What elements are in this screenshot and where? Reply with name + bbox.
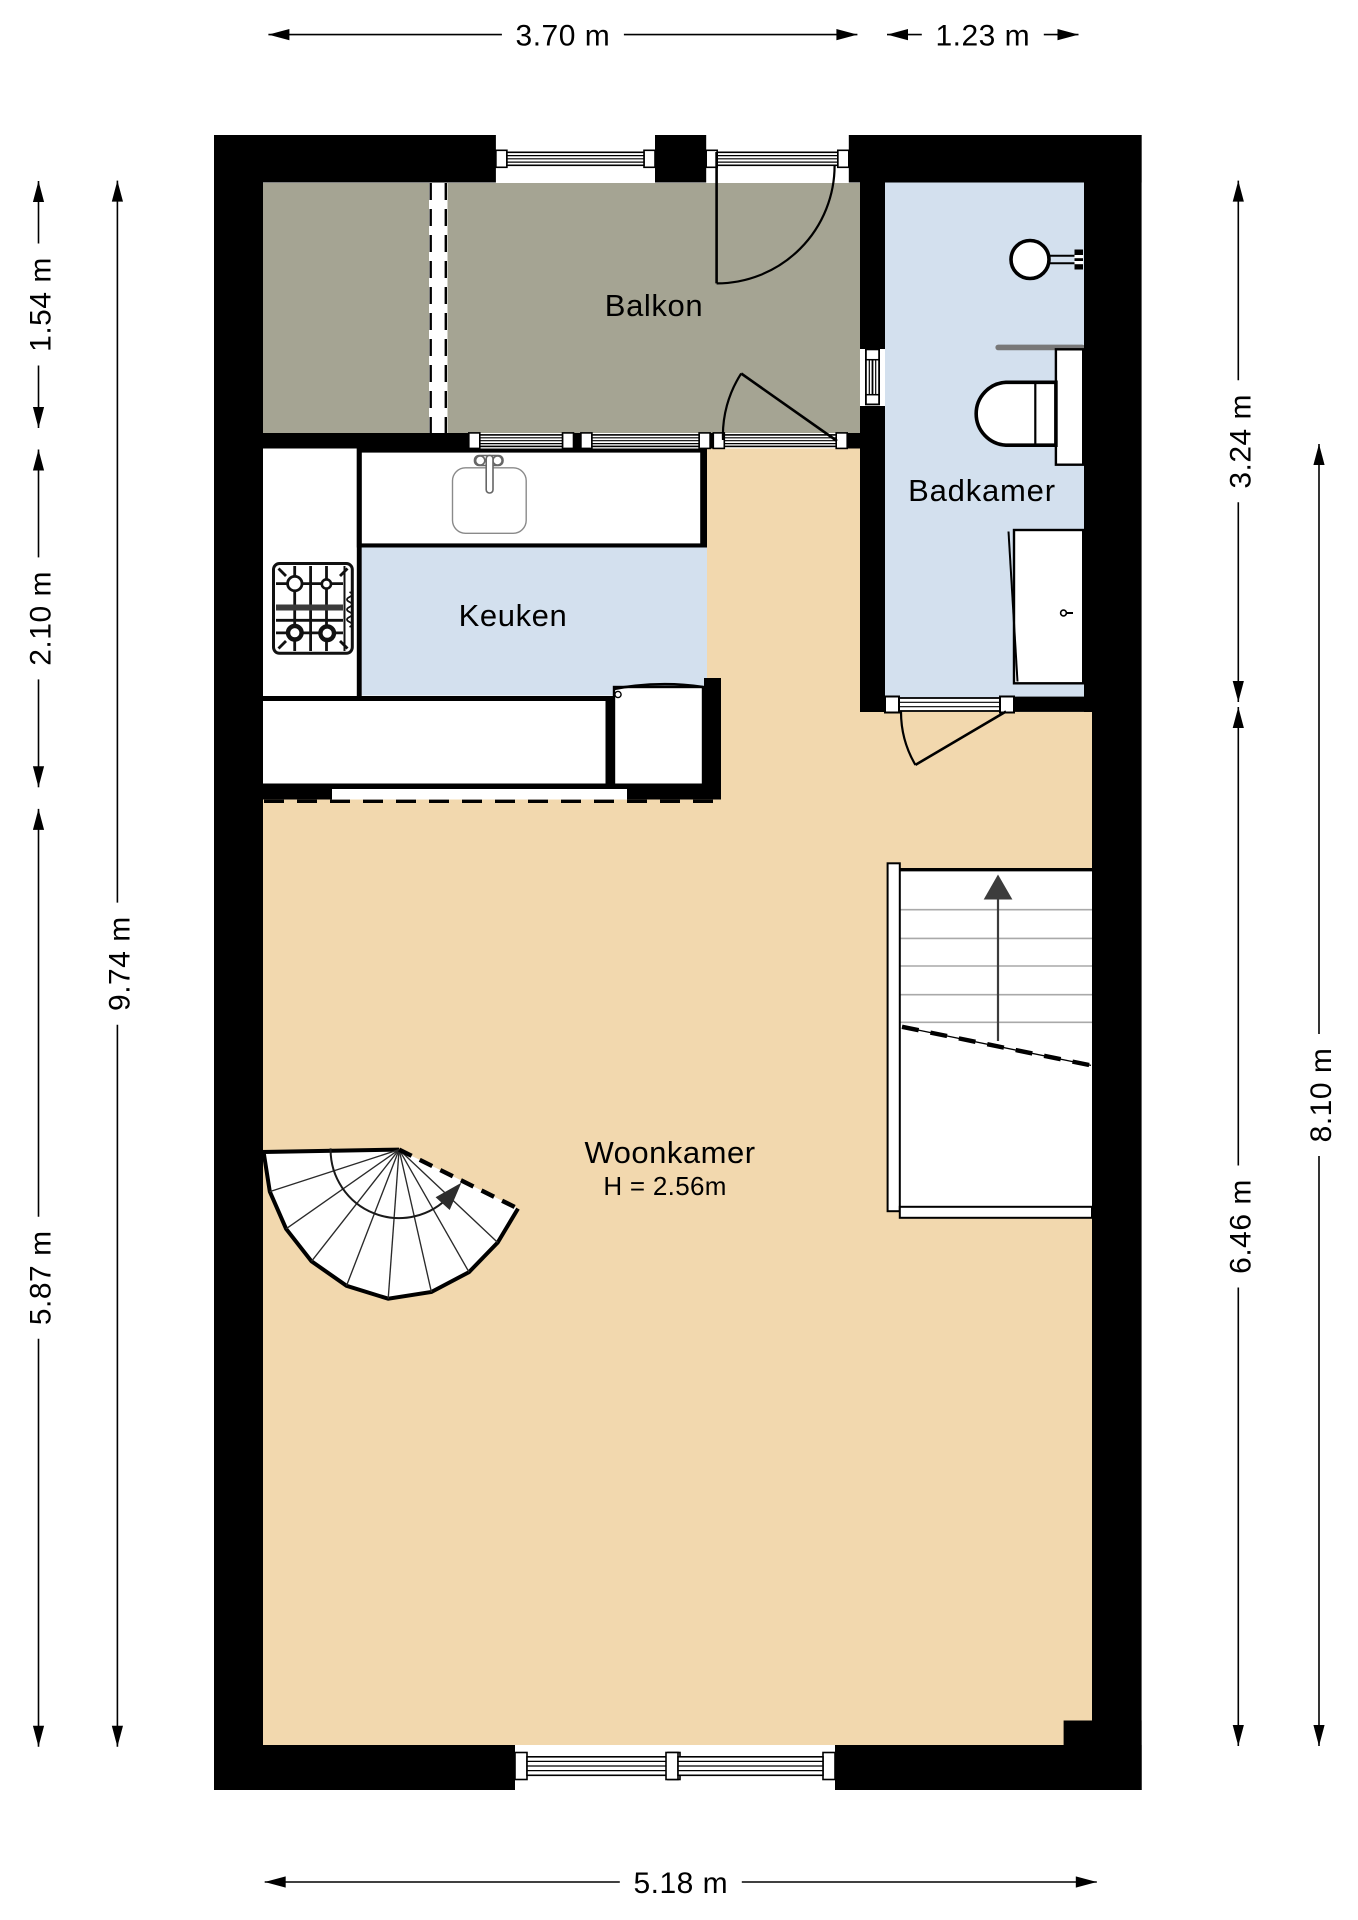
svg-text:5.87 m: 5.87 m [25, 1230, 58, 1325]
svg-text:2.10 m: 2.10 m [25, 571, 58, 666]
svg-text:Woonkamer: Woonkamer [584, 1135, 755, 1170]
svg-text:Badkamer: Badkamer [908, 473, 1056, 508]
svg-text:9.74 m: 9.74 m [103, 916, 136, 1011]
svg-text:Balkon: Balkon [605, 288, 703, 323]
svg-text:3.24 m: 3.24 m [1224, 394, 1257, 489]
svg-text:Keuken: Keuken [459, 598, 568, 633]
svg-text:5.18 m: 5.18 m [633, 1867, 728, 1900]
svg-text:1.23 m: 1.23 m [935, 20, 1030, 53]
svg-text:3.70 m: 3.70 m [516, 20, 611, 53]
svg-text:6.46 m: 6.46 m [1224, 1179, 1257, 1274]
svg-text:8.10 m: 8.10 m [1305, 1048, 1338, 1143]
svg-text:H = 2.56m: H = 2.56m [603, 1171, 726, 1201]
svg-text:1.54 m: 1.54 m [25, 257, 58, 352]
